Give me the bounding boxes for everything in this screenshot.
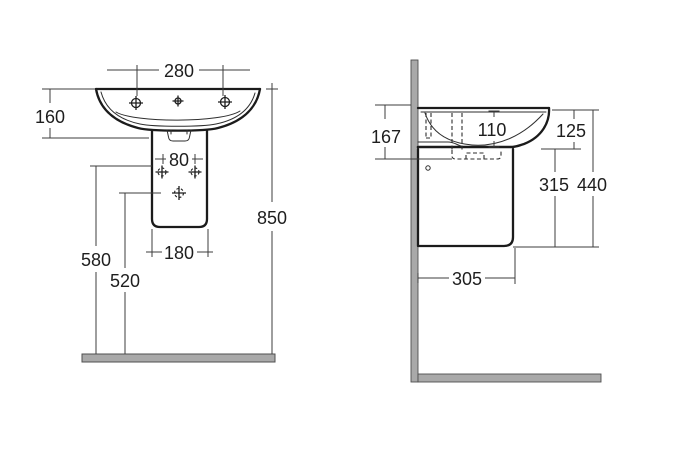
- technical-drawing: 280 160 80 180 850: [0, 0, 700, 450]
- dim-850-label: 850: [257, 208, 287, 228]
- drawing-page: 280 160 80 180 850: [0, 0, 700, 450]
- dim-440-label: 440: [577, 175, 607, 195]
- basin-step-side: [418, 142, 461, 146]
- dim-520-label: 520: [110, 271, 140, 291]
- dim-125-label: 125: [556, 121, 586, 141]
- dim-315: 315: [539, 149, 569, 247]
- dim-180: 180: [146, 229, 213, 263]
- semipedestal-side: [418, 149, 513, 246]
- dim-580: 580: [81, 166, 152, 354]
- fixing-mark: [426, 166, 430, 170]
- dim-110-label: 110: [478, 120, 507, 140]
- basin-holes: [129, 95, 232, 110]
- dim-580-label: 580: [81, 250, 111, 270]
- basin-outline-front: [96, 89, 260, 131]
- pedestal-front: [152, 131, 207, 227]
- dim-80-label: 80: [169, 150, 189, 170]
- dim-315-label: 315: [539, 175, 569, 195]
- pedestal-holes: [156, 166, 202, 201]
- dim-305-label: 305: [452, 269, 482, 289]
- floor-front: [82, 354, 275, 362]
- dim-520: 520: [110, 193, 161, 354]
- dim-160: 160: [35, 89, 149, 138]
- side-view: 167 110 125 315 440: [371, 60, 607, 382]
- basin-inner-front-2: [116, 111, 240, 120]
- front-view: 280 160 80 180 850: [35, 61, 287, 362]
- dim-280-label: 280: [164, 61, 194, 81]
- dim-280: 280: [107, 61, 250, 96]
- dim-305: 305: [418, 248, 515, 289]
- floor-side: [418, 374, 601, 382]
- dim-180-label: 180: [164, 243, 194, 263]
- dim-850: 850: [257, 83, 287, 354]
- dim-167-label: 167: [371, 127, 401, 147]
- dim-160-label: 160: [35, 107, 65, 127]
